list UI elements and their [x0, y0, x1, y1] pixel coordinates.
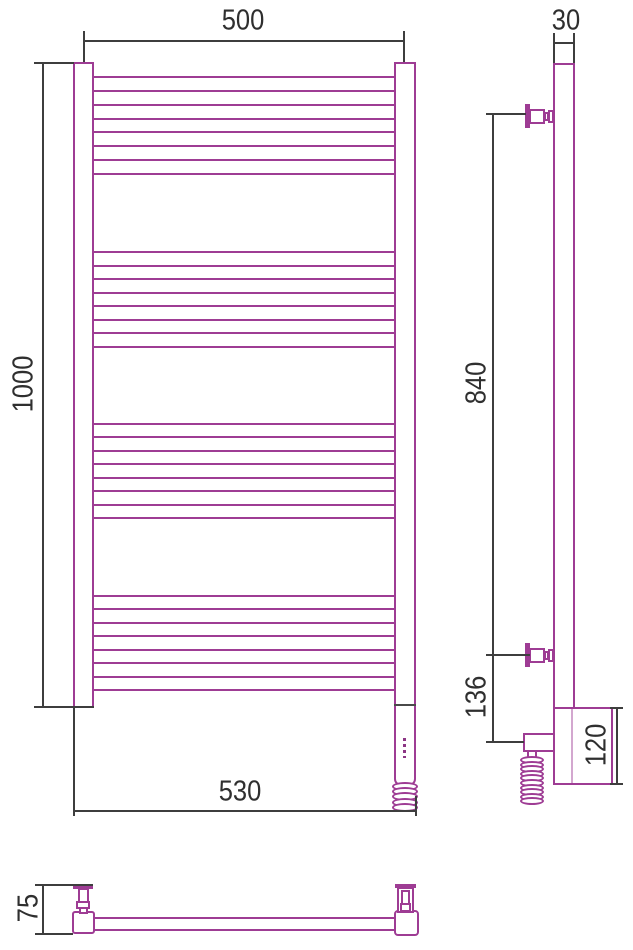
rung-line — [93, 292, 395, 294]
bottom-tube-back-edge — [93, 929, 396, 931]
dim-120-ext-bottom — [610, 783, 623, 785]
rung-line — [93, 104, 395, 106]
dim-75-ext-bottom — [35, 933, 73, 935]
dim-tick-bottom-bracket — [486, 654, 530, 656]
rung-line — [93, 689, 395, 691]
dim-840-136-line — [492, 113, 494, 743]
dim-840-label: 840 — [463, 362, 492, 405]
rung-line — [93, 265, 395, 267]
rung-line — [93, 662, 395, 664]
rung-line — [93, 423, 395, 425]
heater-divider-line — [394, 704, 416, 706]
side-tube — [553, 63, 575, 709]
bottom-tube-front-edge — [93, 917, 396, 919]
dim-75-label: 75 — [15, 894, 44, 922]
dim-30-label: 30 — [552, 7, 580, 36]
dim-1000-line — [42, 62, 44, 708]
dim-136-label: 136 — [463, 676, 492, 719]
rung-line — [93, 436, 395, 438]
bottom-left-corner — [72, 911, 95, 934]
rung-line — [93, 118, 395, 120]
heater-indicator-icon — [403, 738, 406, 758]
dim-75-ext-top — [35, 884, 93, 886]
dim-500-line — [83, 40, 405, 42]
dim-120-line — [616, 707, 618, 785]
rung-line — [93, 131, 395, 133]
rung-line — [93, 477, 395, 479]
coil-loop — [520, 797, 544, 805]
rung-line — [93, 90, 395, 92]
dim-530-ext-left — [73, 708, 75, 816]
rung-line — [93, 595, 395, 597]
dim-1000-label: 1000 — [10, 356, 39, 413]
rung-line — [93, 676, 395, 678]
rung-line — [93, 76, 395, 78]
front-right-tube-heater — [394, 62, 416, 786]
dim-30-line — [553, 42, 575, 44]
dim-tick-top-bracket — [486, 113, 526, 115]
dim-1000-ext-bottom — [34, 706, 94, 708]
dim-1000-ext-top — [34, 62, 74, 64]
rung-line — [93, 159, 395, 161]
rung-line — [93, 145, 395, 147]
rung-line — [93, 649, 395, 651]
rung-line — [93, 635, 395, 637]
rung-line — [93, 517, 395, 519]
rung-line — [93, 319, 395, 321]
rung-line — [93, 173, 395, 175]
side-tube-through-box — [571, 709, 573, 783]
dim-tick-outlet — [486, 741, 524, 743]
rung-line — [93, 346, 395, 348]
dim-530-line — [73, 810, 417, 812]
dim-120-ext-top — [610, 707, 623, 709]
dim-500-ext-right — [403, 31, 405, 62]
dim-500-ext-left — [83, 31, 85, 62]
rung-line — [93, 450, 395, 452]
front-left-tube — [73, 62, 94, 708]
rung-line — [93, 504, 395, 506]
dim-120-label: 120 — [583, 724, 612, 767]
technical-drawing: 500 1000 530 — [0, 0, 633, 950]
rung-line — [93, 490, 395, 492]
rung-line — [93, 305, 395, 307]
rung-line — [93, 278, 395, 280]
bottom-right-corner — [394, 910, 419, 936]
dim-500-label: 500 — [222, 7, 265, 36]
dim-530-ext-right — [415, 796, 417, 816]
rung-line — [93, 463, 395, 465]
rung-line — [93, 332, 395, 334]
rung-line — [93, 251, 395, 253]
rung-line — [93, 608, 395, 610]
dim-530-label: 530 — [219, 778, 262, 807]
dim-30-ext-left — [553, 33, 555, 63]
rung-line — [93, 622, 395, 624]
dim-30-ext-right — [573, 33, 575, 63]
